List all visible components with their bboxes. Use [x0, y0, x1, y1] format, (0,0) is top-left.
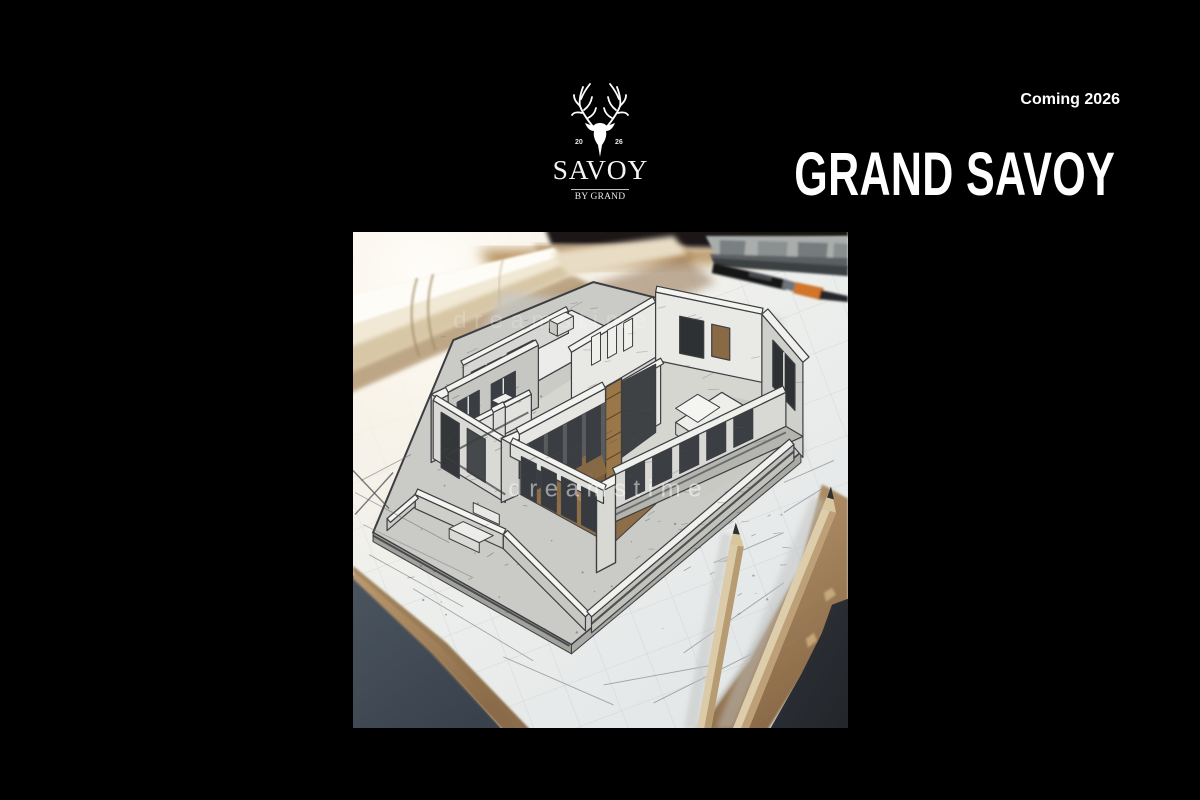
svg-text:26: 26	[615, 139, 623, 146]
svg-text:dreamstime: dreamstime	[453, 307, 654, 334]
svg-text:20: 20	[575, 139, 583, 146]
svg-text:dreamstime: dreamstime	[508, 476, 709, 503]
